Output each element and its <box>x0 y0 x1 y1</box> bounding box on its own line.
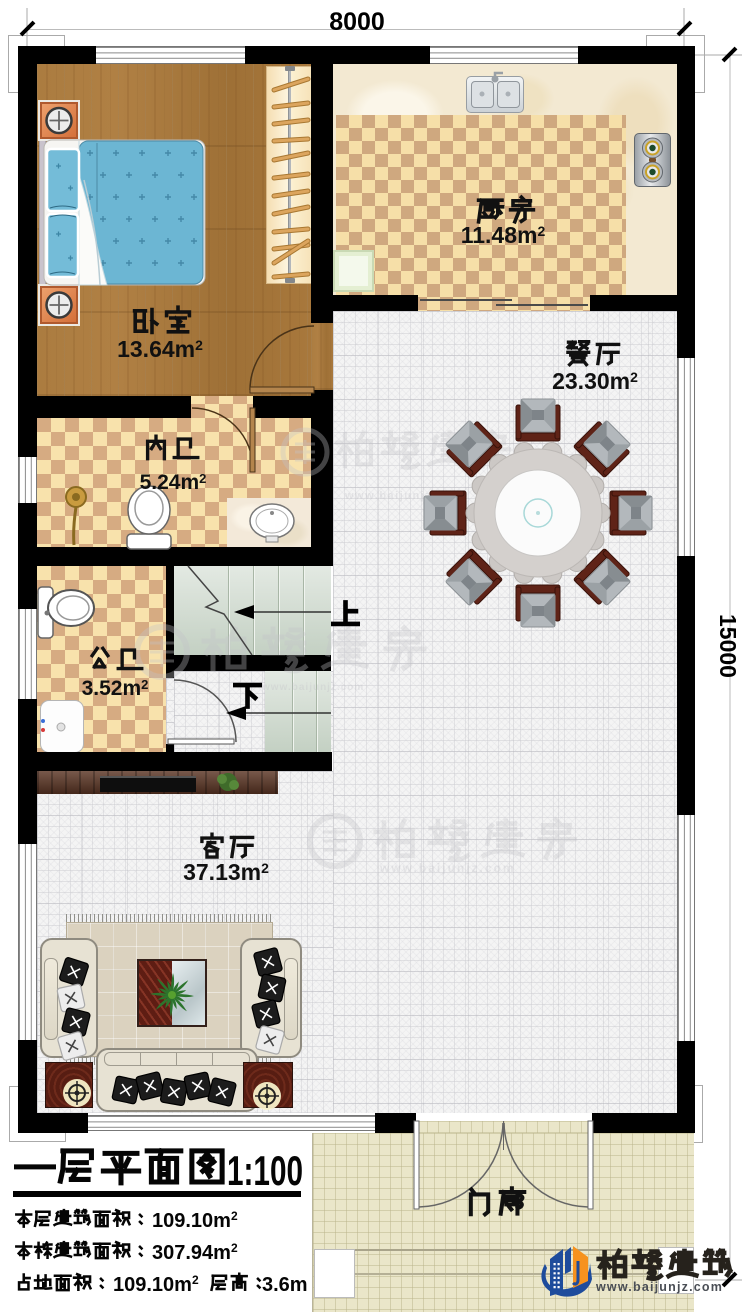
svg-text:109.10m2: 109.10m2 <box>113 1273 199 1296</box>
svg-text:8000: 8000 <box>329 8 385 36</box>
svg-text:13.64m2: 13.64m2 <box>117 336 203 362</box>
svg-text:5.24m2: 5.24m2 <box>140 471 207 494</box>
svg-text:37.13m2: 37.13m2 <box>183 859 269 885</box>
svg-text:109.10m2: 109.10m2 <box>152 1209 238 1232</box>
svg-text:11.48m2: 11.48m2 <box>461 222 546 248</box>
svg-text:23.30m2: 23.30m2 <box>552 368 638 394</box>
svg-text:3.52m2: 3.52m2 <box>82 677 149 700</box>
svg-text:1:100: 1:100 <box>227 1147 303 1194</box>
svg-text:3.6m: 3.6m <box>262 1274 308 1296</box>
svg-text:www.baijunjz.com: www.baijunjz.com <box>379 861 516 875</box>
svg-text:15000: 15000 <box>715 614 741 678</box>
svg-text:www.baijunjz.com: www.baijunjz.com <box>261 682 364 693</box>
svg-text:307.94m2: 307.94m2 <box>152 1241 238 1264</box>
svg-text:www.baijunjz.com: www.baijunjz.com <box>595 1280 723 1294</box>
